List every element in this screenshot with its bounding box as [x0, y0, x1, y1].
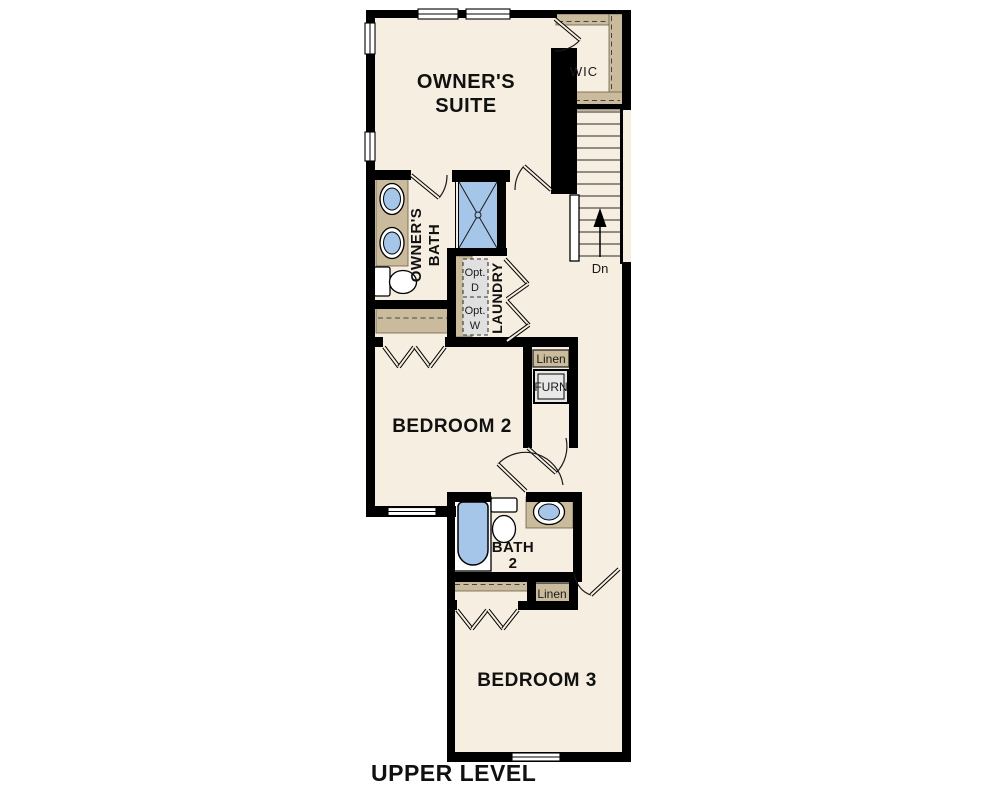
wall-bath-laundry: [447, 248, 456, 347]
laundry-label: LAUNDRY: [489, 262, 505, 334]
wall-hallcloset-left: [523, 345, 532, 448]
owners-bath-label-line1: OWNER'S: [408, 208, 425, 283]
plan-title: UPPER LEVEL: [371, 760, 536, 786]
linen-upper-label: Linen: [536, 352, 565, 366]
owners-bath-toilet-tank: [374, 267, 390, 296]
wall-top-exterior: [366, 10, 557, 18]
wall-bath-closet: [366, 300, 455, 309]
wall-bath2-bottom: [447, 572, 582, 582]
stair-handrail: [570, 195, 579, 261]
wall-shower-right: [497, 170, 506, 256]
wall-bedroom3-top-left: [447, 600, 457, 610]
wall-bath2-right: [573, 492, 582, 582]
opt-washer-label-line1: Opt.: [465, 305, 486, 317]
linen-lower-label: Linen: [537, 587, 566, 601]
bath2-sink-basin: [539, 504, 560, 520]
opt-dryer-label-line1: Opt.: [465, 267, 486, 279]
wall-right-stair-thin: [620, 108, 623, 264]
bath2-label-line2: 2: [509, 555, 518, 572]
stairs-down-label: Dn: [592, 261, 609, 276]
bath2-tub: [458, 502, 488, 565]
shower-drain: [475, 212, 481, 218]
wall-top-wic-thin: [556, 10, 631, 14]
wall-right-exterior: [622, 262, 631, 762]
floor-area: [366, 10, 631, 762]
wall-left-exterior: [366, 10, 375, 517]
wall-bedroom2-top-left: [366, 337, 383, 347]
owners-bath-label-line2: BATH: [426, 224, 443, 267]
owners-bath-sink-1-basin: [384, 188, 401, 210]
opt-washer-label-line2: W: [470, 320, 481, 332]
wall-bath2-top-left: [447, 492, 491, 502]
bath2-label-line1: BATH: [492, 539, 535, 556]
bedroom2-closet-shelf: [376, 307, 453, 333]
bedroom3-label: BEDROOM 3: [477, 670, 597, 691]
owners-bath-sink-2-basin: [384, 232, 401, 254]
wall-bedroom3-top-right: [518, 601, 578, 610]
wall-right-wic: [622, 10, 631, 110]
bath2-toilet-tank: [491, 498, 517, 512]
bedroom2-closet: [376, 307, 453, 333]
wic-label: WIC: [570, 64, 598, 79]
bedroom2-label: BEDROOM 2: [392, 416, 512, 437]
wall-bedroom3-left-exterior: [447, 492, 455, 762]
floor-plan-drawing: OWNER'S SUITE WIC OWNER'S BATH LAUNDRY O…: [0, 0, 1000, 800]
wall-hallcloset-right: [569, 345, 578, 448]
furnace-label: FURN: [534, 380, 567, 394]
wall-stair-top-line: [555, 104, 623, 109]
floor-plan-page: OWNER'S SUITE WIC OWNER'S BATH LAUNDRY O…: [0, 0, 1000, 800]
owners-suite-label-line1: OWNER'S: [417, 71, 515, 93]
owners-suite-label-line2: SUITE: [435, 95, 496, 117]
wall-suite-bath: [366, 170, 411, 180]
opt-dryer-label-line2: D: [471, 282, 479, 294]
